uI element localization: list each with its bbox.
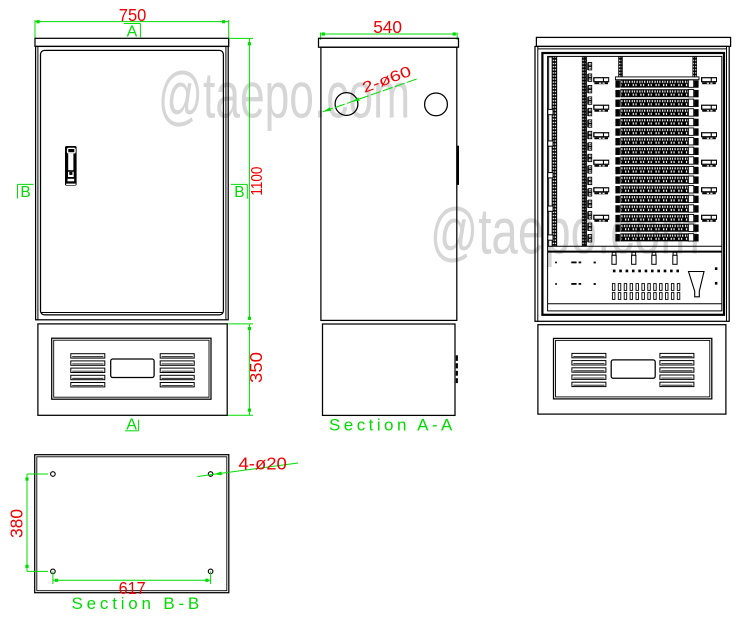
svg-text:Section A-A: Section A-A xyxy=(329,416,456,435)
svg-text:B: B xyxy=(234,184,244,201)
svg-text:B: B xyxy=(20,184,30,201)
svg-text:350: 350 xyxy=(246,352,266,383)
svg-text:4-ø20: 4-ø20 xyxy=(239,453,288,473)
svg-text:540: 540 xyxy=(373,17,402,37)
svg-text:750: 750 xyxy=(119,5,147,25)
svg-text:1100: 1100 xyxy=(249,167,266,196)
svg-text:Section B-B: Section B-B xyxy=(72,594,204,613)
svg-text:380: 380 xyxy=(7,509,27,538)
